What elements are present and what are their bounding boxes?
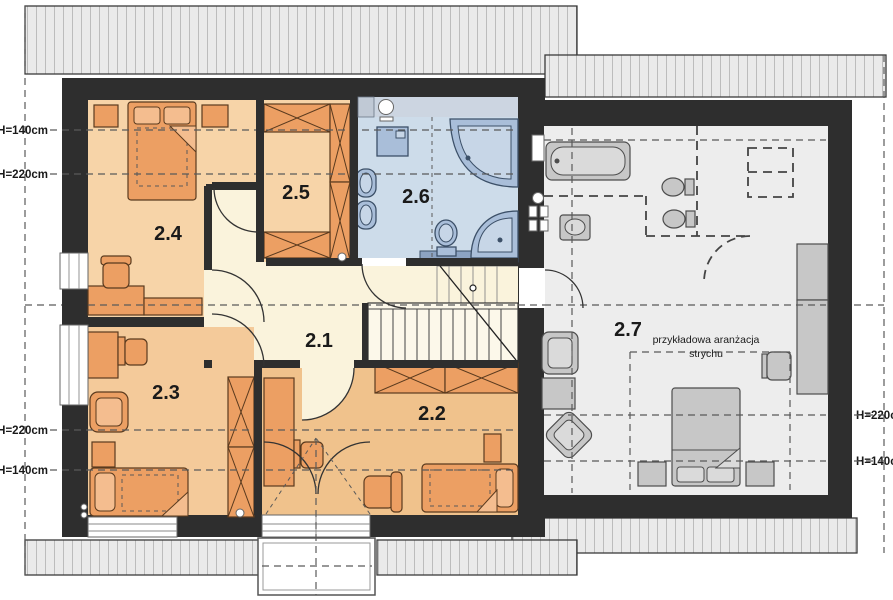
wall-bath-south-left [266, 258, 362, 266]
dim-label-left-1: H=140cm [0, 125, 48, 137]
chimney-vent [533, 193, 544, 204]
washing-machine-panel [396, 131, 405, 138]
nightstand [202, 105, 228, 127]
pillow [164, 107, 190, 124]
sink-proposed [560, 215, 590, 240]
desk-extension [144, 298, 202, 315]
nightstand [92, 442, 115, 467]
room-label-2-4: 2.4 [154, 223, 183, 245]
pillow [134, 107, 160, 124]
sink [356, 169, 376, 197]
wall-2-4-2-3 [80, 317, 204, 327]
wardrobe-2-5-top [264, 104, 330, 132]
window-left-lower [60, 325, 88, 405]
dim-label-right-1: H=220cm [856, 410, 893, 422]
pillow [496, 469, 513, 507]
roof-band-top-right [545, 55, 886, 97]
wall-bath-south-right [406, 258, 518, 266]
window-left-upper [60, 253, 88, 289]
bathtub-proposed [546, 142, 630, 180]
side-table [542, 378, 575, 409]
floor-plan-page: 2.1 2.2 2.3 2.4 2.5 2.6 2.7 przykładowa … [0, 0, 893, 600]
armchair-back [391, 472, 402, 512]
roof-band-bottom-mid [377, 540, 577, 575]
double-bed-proposed [672, 388, 740, 486]
dim-label-left-3: H=220cm [0, 425, 48, 437]
nightstand [94, 105, 118, 127]
wall-marker [81, 512, 87, 518]
wall-2-4-strip [204, 186, 212, 270]
wall-marker [236, 509, 244, 517]
window-2-3-bottom [88, 517, 177, 537]
dim-label-right-2: H=140cm [856, 456, 893, 468]
pillow [707, 467, 734, 482]
nightstand [746, 462, 774, 486]
floor-plan-drawing: 2.1 2.2 2.3 2.4 2.5 2.6 2.7 przykładowa … [0, 0, 893, 600]
wall-stub [204, 360, 212, 368]
desk-chair [103, 263, 129, 288]
room-label-2-5: 2.5 [282, 182, 310, 204]
sink [356, 201, 376, 229]
bathroom-door-opening [362, 258, 406, 266]
wardrobe-column-2-3 [228, 377, 254, 517]
chimney-flue [532, 135, 544, 161]
desk-chair [301, 442, 323, 468]
wall-hall-2-2-left [254, 360, 300, 368]
wall-2-5-2-6 [350, 97, 358, 262]
room-label-2-6: 2.6 [402, 186, 430, 208]
desk [797, 300, 828, 394]
stair-flight [368, 303, 518, 362]
room-label-2-7: 2.7 [614, 319, 642, 341]
desk [88, 332, 118, 378]
bidet-proposed [663, 210, 695, 228]
chair-back [118, 337, 125, 365]
room-label-2-2: 2.2 [418, 403, 446, 425]
bathtub-drain [466, 156, 471, 161]
toilet [435, 220, 457, 256]
wall-2-3-2-2 [254, 368, 262, 515]
stair-post [470, 285, 476, 291]
attic-note-line1: przykładowa aranżacja [653, 334, 760, 346]
attic-door-opening [519, 268, 545, 308]
wall-hall-2-2-right [354, 360, 518, 368]
wall-marker [81, 504, 87, 510]
wardrobe-2-5-side [330, 104, 350, 260]
wall-marker [338, 253, 346, 261]
desk-chair [762, 352, 791, 380]
wardrobe [797, 244, 828, 300]
toilet-proposed [662, 178, 694, 196]
nightstand [484, 434, 501, 462]
wall-2-4-2-5 [256, 100, 264, 262]
roof-band-bottom-left [25, 540, 262, 575]
dim-label-left-2: H=220cm [0, 169, 48, 181]
desk [88, 286, 144, 315]
room-label-2-3: 2.3 [152, 382, 180, 404]
wall-stair-side [362, 303, 368, 362]
armchair [364, 476, 394, 508]
pillow [677, 467, 704, 482]
nightstand [638, 462, 666, 486]
skylight-dome [379, 100, 394, 115]
desk-chair [125, 339, 147, 365]
roof-band-top-left [25, 6, 577, 74]
attic-note-line2: strychu [689, 348, 723, 360]
dim-label-left-4: H=140cm [0, 465, 48, 477]
pillow [95, 473, 115, 511]
room-label-2-1: 2.1 [305, 330, 333, 352]
wardrobe-2-5-bottom [264, 232, 330, 258]
armchair-seat [96, 398, 122, 426]
wall-strip-top [212, 182, 264, 190]
